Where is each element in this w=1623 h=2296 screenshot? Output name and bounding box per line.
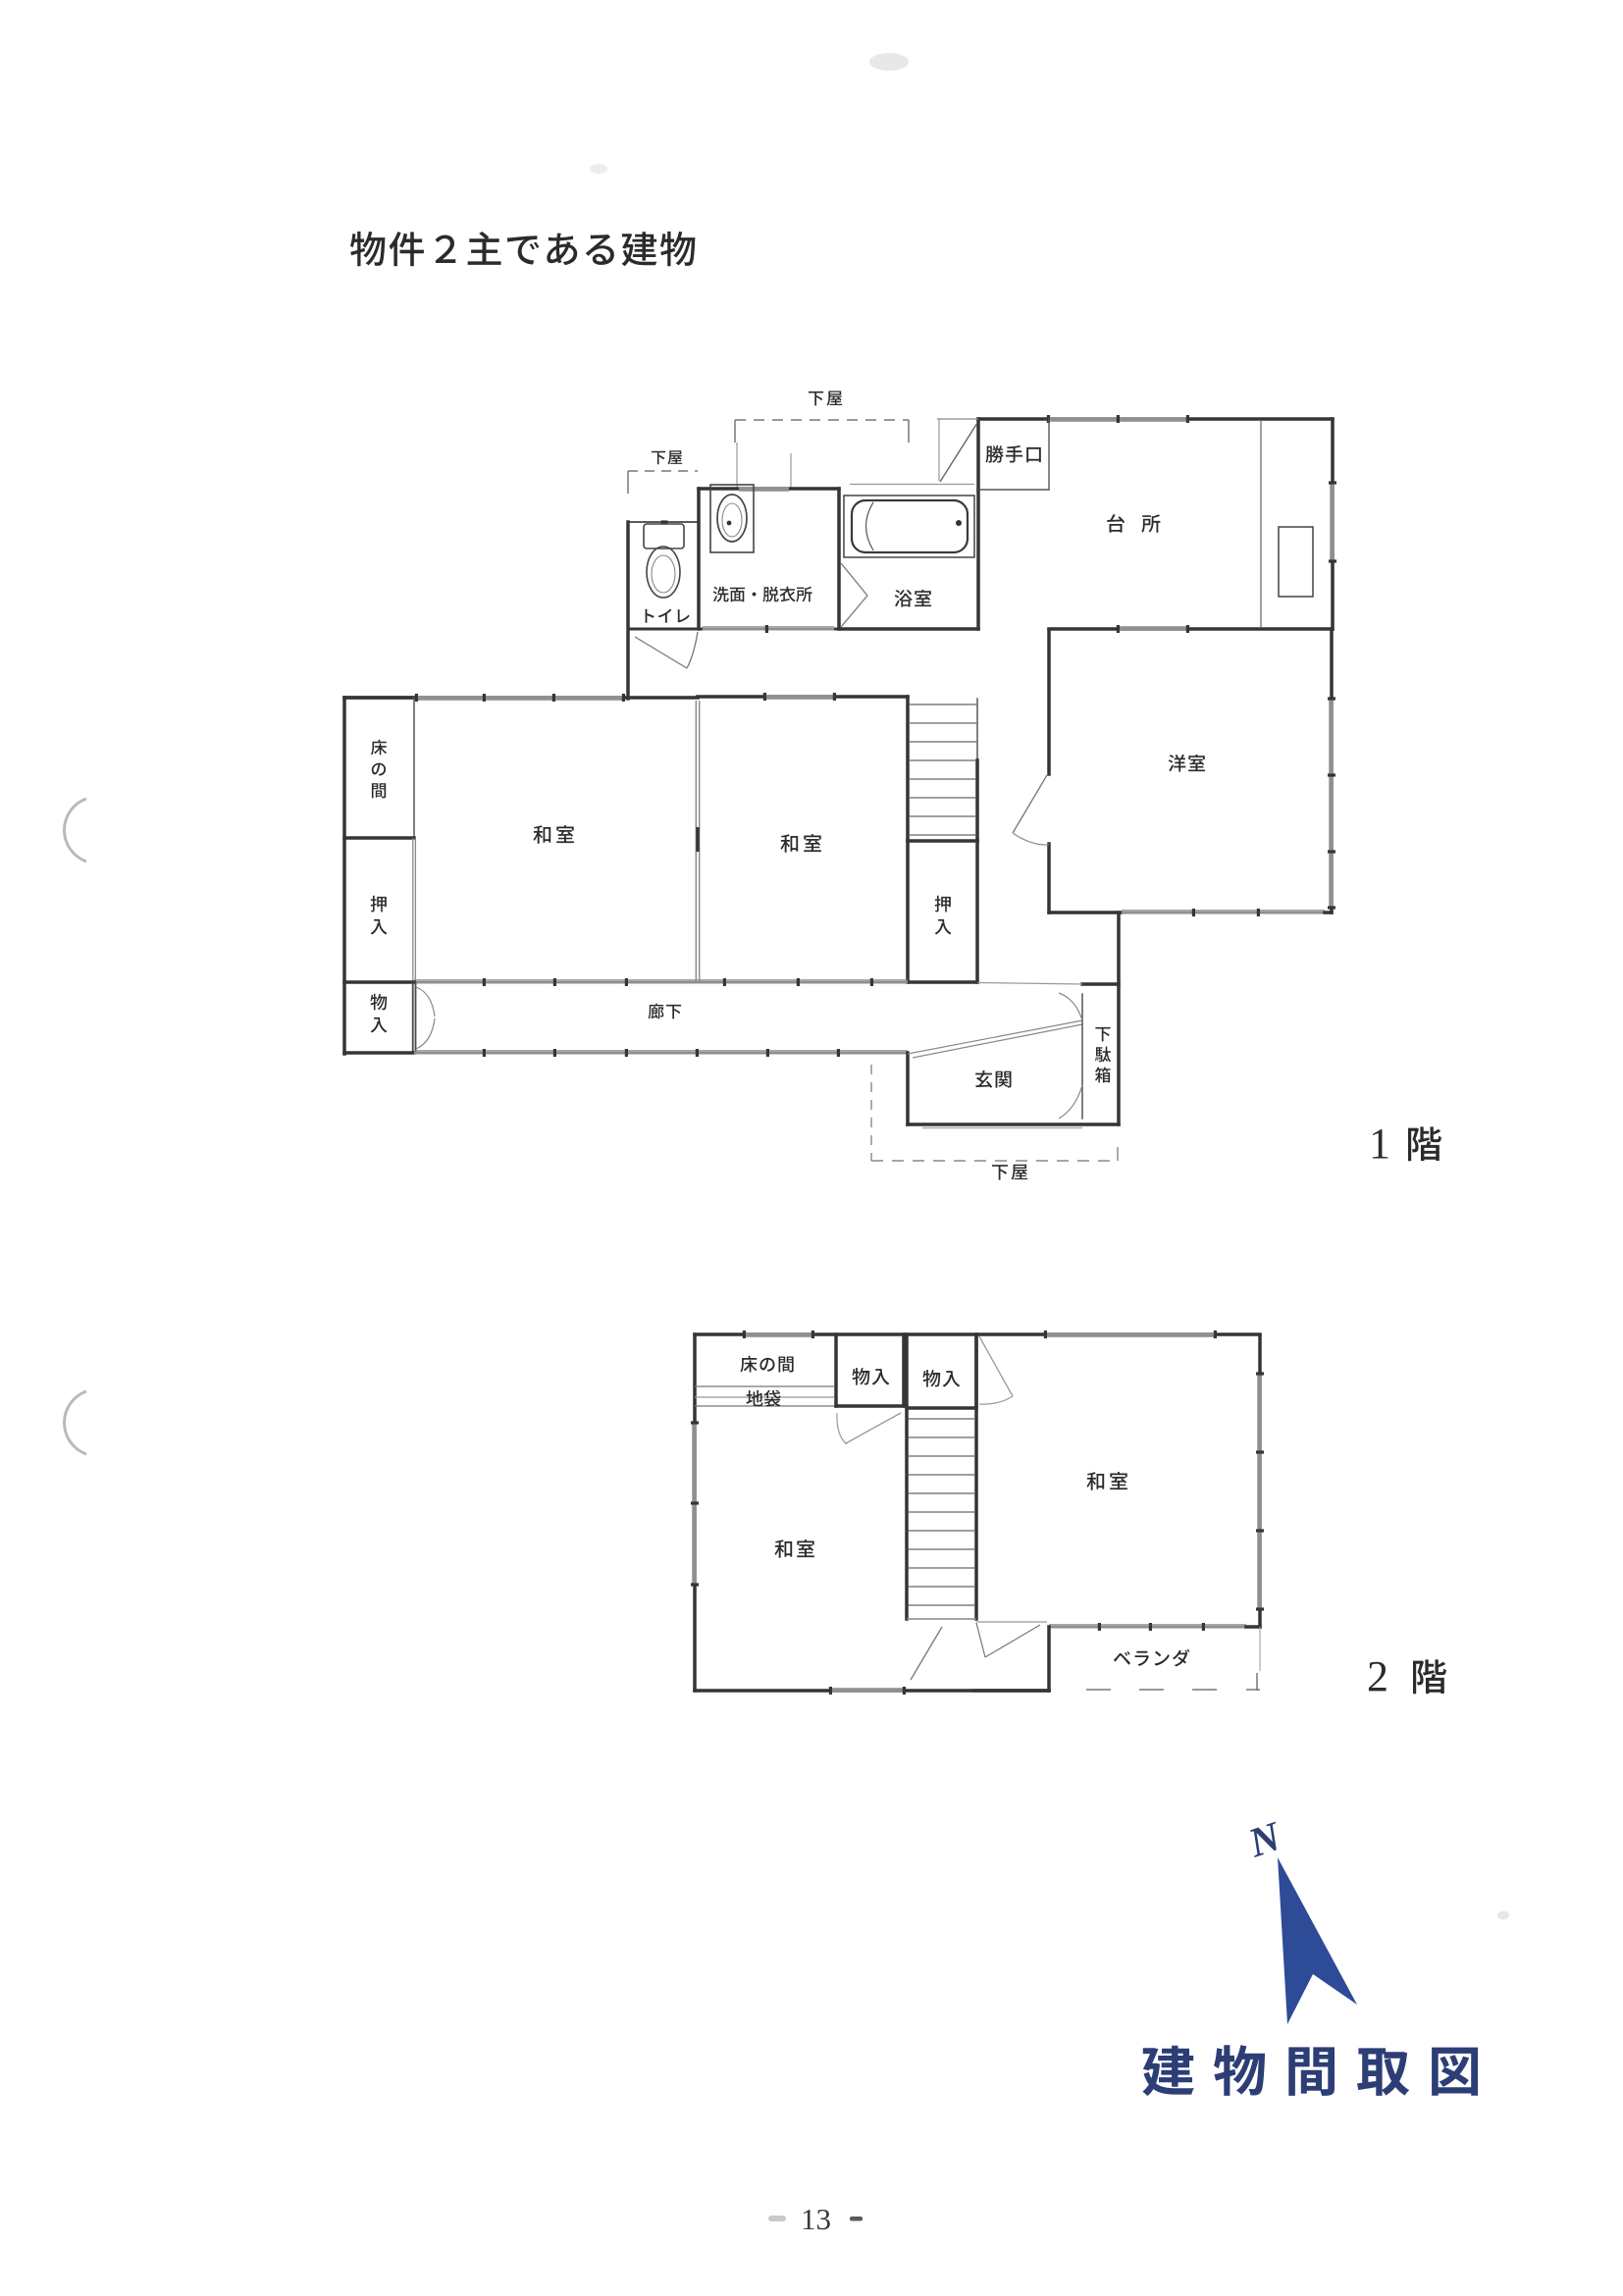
svg-text:1: 1 bbox=[1369, 1120, 1390, 1168]
svg-text:13: 13 bbox=[801, 2202, 831, 2236]
svg-text:2: 2 bbox=[1367, 1652, 1388, 1700]
